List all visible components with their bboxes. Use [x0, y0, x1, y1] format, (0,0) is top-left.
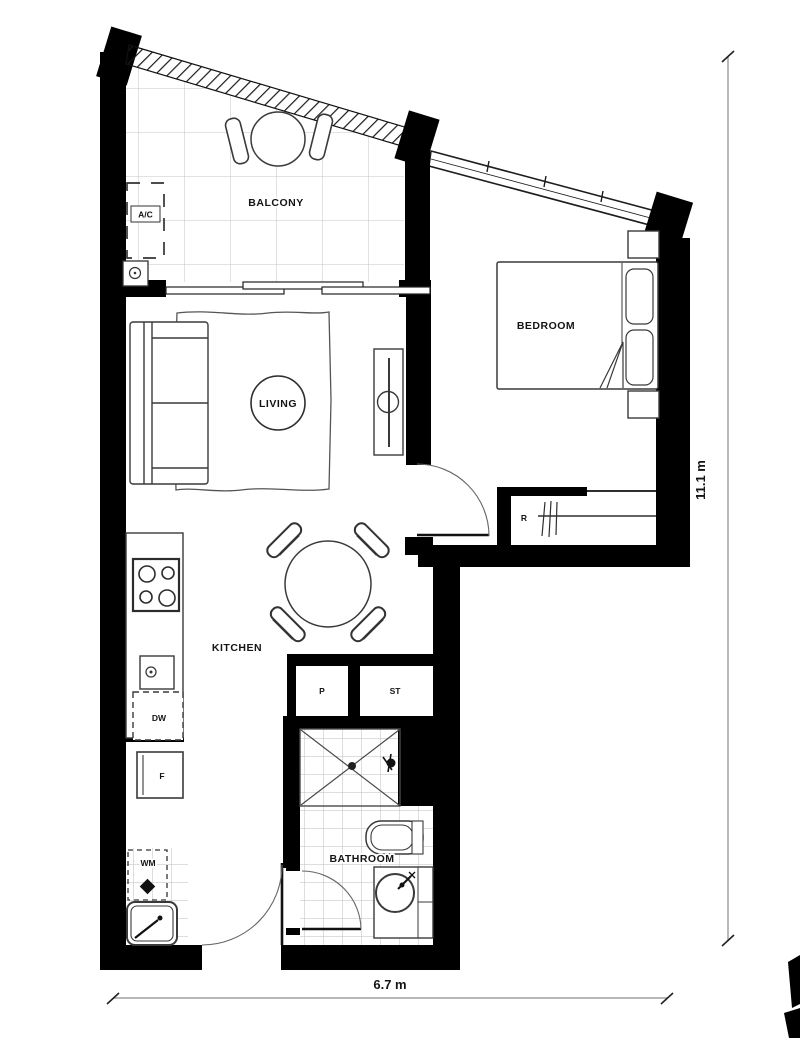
robe: R	[521, 491, 656, 537]
dining-set	[265, 521, 391, 645]
bedroom-door	[417, 464, 489, 536]
floor-plan-drawing: A/C BALCONY LIVING	[0, 0, 800, 1038]
floor-plan: A/C BALCONY LIVING	[0, 0, 800, 1038]
bedroom-window	[429, 151, 659, 227]
balcony-drain	[123, 261, 148, 286]
fridge: F	[137, 752, 183, 798]
living-marker: LIVING	[251, 376, 305, 430]
kitchen-sink	[140, 656, 174, 689]
bedside-table-bottom	[628, 391, 659, 418]
ac-label: A/C	[138, 210, 153, 220]
watermark-logo	[784, 955, 800, 1038]
sofa	[130, 322, 208, 484]
balcony-sliding-door	[166, 282, 430, 294]
robe-label: R	[521, 513, 527, 523]
dimension-width: 6.7 m	[107, 977, 673, 1004]
height-dimension-label: 11.1 m	[693, 460, 708, 500]
balcony-table	[251, 112, 305, 166]
bathroom-label: BATHROOM	[329, 853, 394, 865]
dishwasher: DW	[133, 692, 183, 740]
pantry-label: P	[319, 686, 325, 696]
fridge-label: F	[159, 771, 164, 781]
storage-label: ST	[390, 686, 402, 696]
kitchen-label: KITCHEN	[212, 642, 262, 654]
dimension-height: 11.1 m	[693, 51, 734, 946]
dining-table	[285, 541, 371, 627]
living-room: LIVING	[130, 312, 403, 491]
entry-door	[202, 863, 282, 945]
tv-unit	[374, 349, 403, 455]
laundry-tub	[127, 902, 177, 945]
balcony-label: BALCONY	[248, 197, 303, 209]
closets: P ST	[319, 686, 401, 696]
vanity	[374, 867, 433, 938]
living-label: LIVING	[259, 398, 297, 410]
width-dimension-label: 6.7 m	[373, 977, 406, 992]
washing-machine-label: WM	[140, 858, 155, 868]
toilet	[366, 821, 423, 854]
dishwasher-label: DW	[152, 713, 167, 723]
bedroom-label: BEDROOM	[517, 320, 575, 332]
shower-drain	[348, 762, 356, 770]
bedside-table-top	[628, 231, 659, 258]
